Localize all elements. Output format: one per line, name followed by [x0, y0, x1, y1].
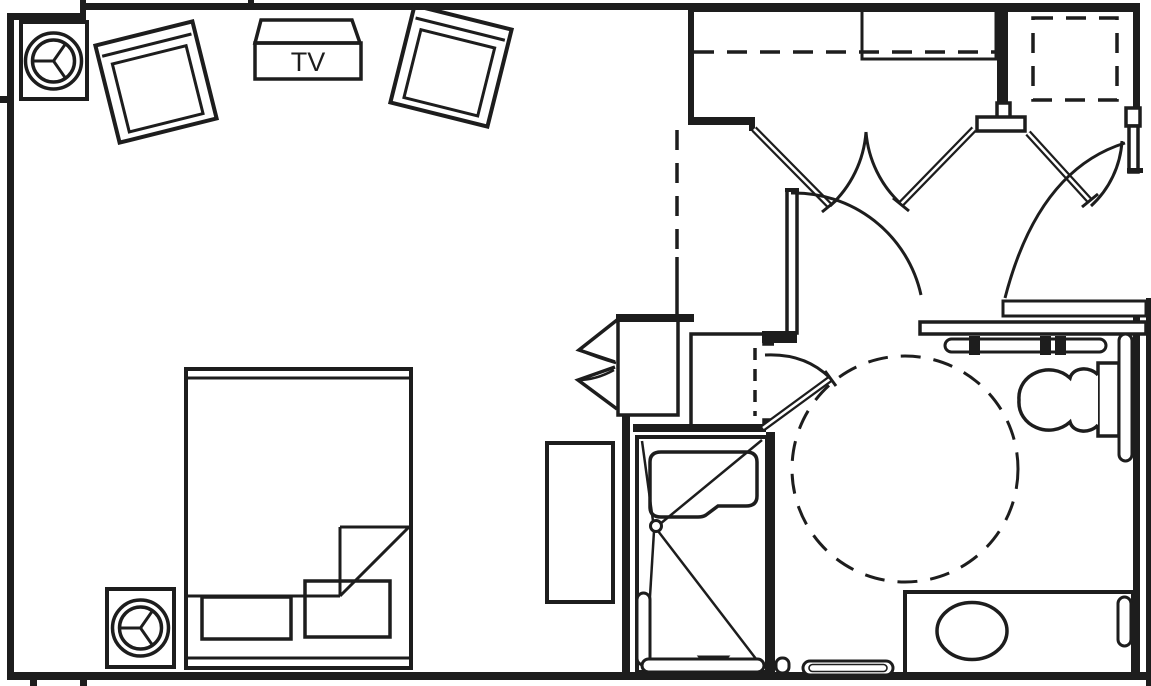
vanity	[905, 592, 1133, 675]
sink	[937, 603, 1007, 660]
floor-plan: TV	[0, 0, 1151, 686]
hall-counter	[1003, 301, 1146, 316]
bedroom-bath-wall	[622, 415, 630, 676]
tv-cabinet-top	[255, 20, 360, 43]
grab-bar-horizontal	[642, 659, 764, 672]
bathroom-north-wall	[920, 322, 1146, 334]
doors	[754, 129, 1125, 298]
wall-stub	[80, 678, 87, 686]
bathroom	[637, 334, 1133, 675]
shower-seat	[650, 452, 757, 517]
towel-bar-floor	[803, 661, 893, 675]
bath-door-jamb-wall	[762, 331, 797, 343]
linen-closet	[691, 334, 836, 428]
toilet	[1019, 363, 1119, 436]
bifold-door-swing	[579, 350, 616, 363]
dresser	[547, 443, 613, 602]
closet-bottom-wall	[688, 117, 754, 125]
towel-bar	[1118, 597, 1131, 646]
entry-jamb-cap	[1127, 168, 1143, 173]
hall-bath-partition	[787, 190, 797, 333]
door-swing	[866, 132, 901, 204]
roll-in-shower	[637, 437, 767, 672]
wall-cap	[785, 188, 799, 192]
blanket-fold-diagonal	[340, 527, 409, 596]
closet-box	[618, 318, 678, 415]
bathroom-door-swing	[791, 193, 921, 295]
grab-bar-bracket	[1040, 336, 1051, 355]
shower-drain	[651, 521, 662, 532]
bedroom: TV	[21, 5, 678, 668]
round-table	[107, 589, 174, 667]
grab-bar-bracket	[1055, 336, 1066, 355]
tv-label: TV	[291, 47, 326, 77]
shelf-dashed	[1033, 18, 1117, 100]
top-wall	[83, 3, 690, 10]
entry-jamb	[1126, 108, 1140, 126]
wall-pier	[977, 117, 1025, 131]
bifold-closet	[578, 318, 678, 415]
armchair	[390, 5, 511, 126]
wall-stub	[30, 680, 37, 686]
grab-bar-vertical	[1119, 334, 1132, 461]
wall-stub	[0, 96, 7, 103]
bed	[186, 369, 411, 668]
door-swing	[830, 132, 866, 206]
closet-divider-wall	[997, 8, 1008, 117]
grab-bar-vertical	[637, 593, 650, 665]
slope-line	[658, 531, 763, 668]
top-left-step-wall	[7, 13, 85, 20]
turning-circle	[792, 356, 1018, 582]
bifold-door-leaf	[578, 367, 617, 409]
exterior-right-wall	[1146, 298, 1151, 686]
bifold-door-leaf	[579, 320, 617, 362]
vanity-counter	[905, 592, 1133, 675]
grab-bar-stub	[776, 658, 789, 673]
grab-bar-bracket	[969, 336, 980, 355]
toilet-tank	[1098, 363, 1119, 436]
floor-plan-svg: TV	[0, 0, 1151, 686]
shower-pan	[637, 437, 767, 672]
armchair	[95, 21, 216, 142]
closet-left-wall	[688, 8, 694, 120]
door-jamb	[749, 117, 755, 131]
entry-door-closed	[1129, 126, 1138, 172]
round-table	[21, 22, 87, 99]
toilet-bowl	[1019, 369, 1098, 431]
tv-cabinet: TV	[255, 20, 361, 79]
right-wall-upper	[1133, 3, 1140, 108]
bed-frame	[186, 369, 411, 668]
entry-door-swing	[1005, 143, 1125, 298]
wall-stub	[248, 0, 254, 8]
left-wall	[7, 13, 14, 673]
linen-closet-walls	[691, 334, 755, 428]
pillow	[202, 597, 291, 639]
door-swing	[765, 355, 830, 378]
hall-closets	[694, 10, 1117, 100]
